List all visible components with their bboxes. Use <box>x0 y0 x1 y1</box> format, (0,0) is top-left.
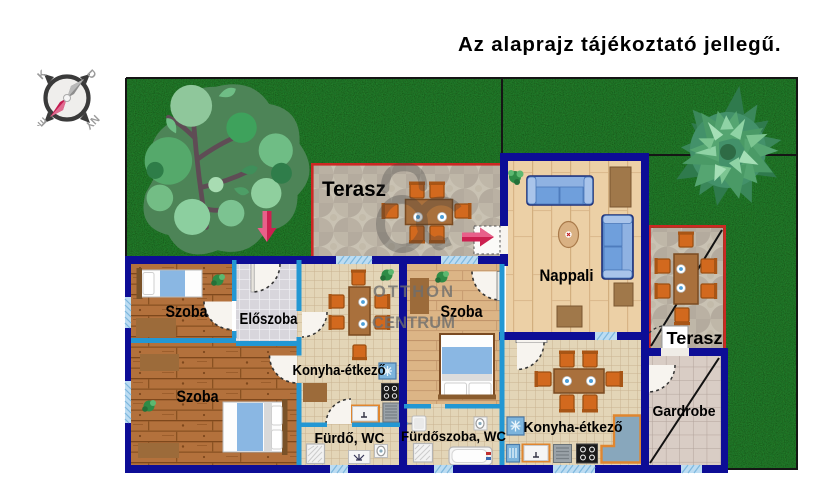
svg-text:Konyha-étkező: Konyha-étkező <box>524 419 623 436</box>
svg-text:Konyha-étkező: Konyha-étkező <box>293 363 386 379</box>
svg-text:Szoba: Szoba <box>166 303 209 321</box>
svg-text:OTTHON: OTTHON <box>373 283 453 301</box>
svg-text:Terasz: Terasz <box>322 178 386 201</box>
svg-text:Fürdőszoba, WC: Fürdőszoba, WC <box>401 428 506 444</box>
svg-text:Terasz: Terasz <box>667 328 723 348</box>
svg-text:Előszoba: Előszoba <box>240 311 298 328</box>
svg-text:Fürdő, WC: Fürdő, WC <box>315 431 385 447</box>
svg-text:Gardrobe: Gardrobe <box>653 403 716 420</box>
svg-text:CENTRUM: CENTRUM <box>372 314 455 332</box>
svg-text:Az alaprajz tájékoztató jelleg: Az alaprajz tájékoztató jellegű. <box>458 33 781 56</box>
svg-text:Nappali: Nappali <box>540 267 594 285</box>
svg-text:Szoba: Szoba <box>177 388 220 406</box>
